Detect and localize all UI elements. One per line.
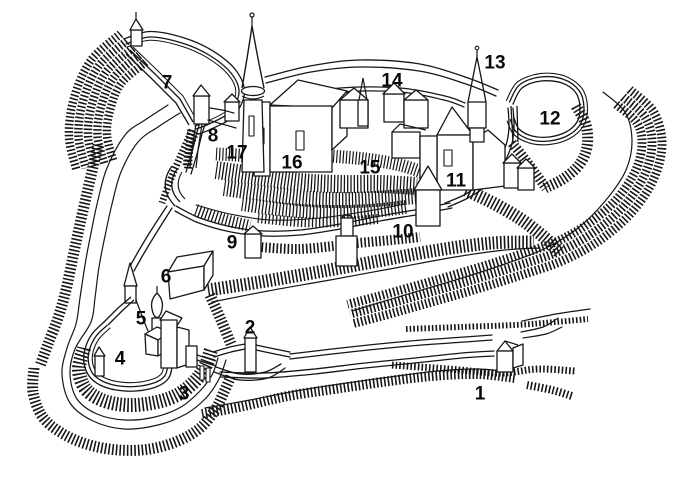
svg-text:1: 1 xyxy=(475,384,486,405)
svg-text:7: 7 xyxy=(162,73,173,94)
svg-text:8: 8 xyxy=(208,126,219,147)
svg-text:5: 5 xyxy=(136,309,147,330)
svg-text:17: 17 xyxy=(226,143,247,164)
svg-text:13: 13 xyxy=(484,53,505,74)
svg-text:3: 3 xyxy=(179,384,190,405)
svg-text:4: 4 xyxy=(115,349,126,370)
svg-text:10: 10 xyxy=(392,222,413,243)
svg-text:15: 15 xyxy=(359,158,381,179)
svg-text:16: 16 xyxy=(281,153,302,174)
svg-text:11: 11 xyxy=(446,171,467,192)
svg-text:9: 9 xyxy=(227,233,238,254)
svg-text:6: 6 xyxy=(161,267,172,288)
svg-text:14: 14 xyxy=(381,71,403,92)
svg-text:2: 2 xyxy=(245,318,256,339)
svg-text:12: 12 xyxy=(539,109,560,130)
